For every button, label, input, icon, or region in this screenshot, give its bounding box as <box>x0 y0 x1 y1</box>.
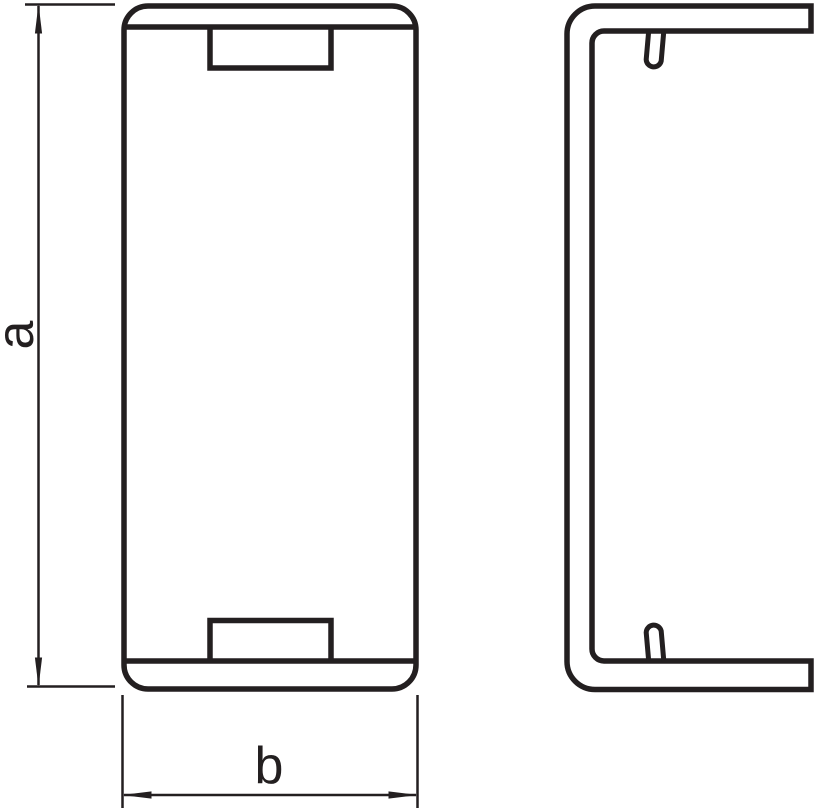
front-view-outline <box>124 6 416 689</box>
side-view-top-clip <box>646 31 664 67</box>
dimension-b-arrow-left <box>122 791 152 798</box>
side-view-profile <box>567 6 811 690</box>
dimension-b-label: b <box>255 740 284 792</box>
drawing-linework <box>0 0 817 812</box>
side-view-bottom-clip <box>646 625 664 661</box>
side-view <box>567 6 811 690</box>
front-view <box>124 6 416 689</box>
dimension-a-arrow-down <box>35 658 42 688</box>
dimension-a-arrow-up <box>35 4 42 34</box>
dimension-a-label: a <box>0 321 42 350</box>
technical-drawing: a b <box>0 0 817 812</box>
dimension-b-arrow-right <box>389 791 419 798</box>
